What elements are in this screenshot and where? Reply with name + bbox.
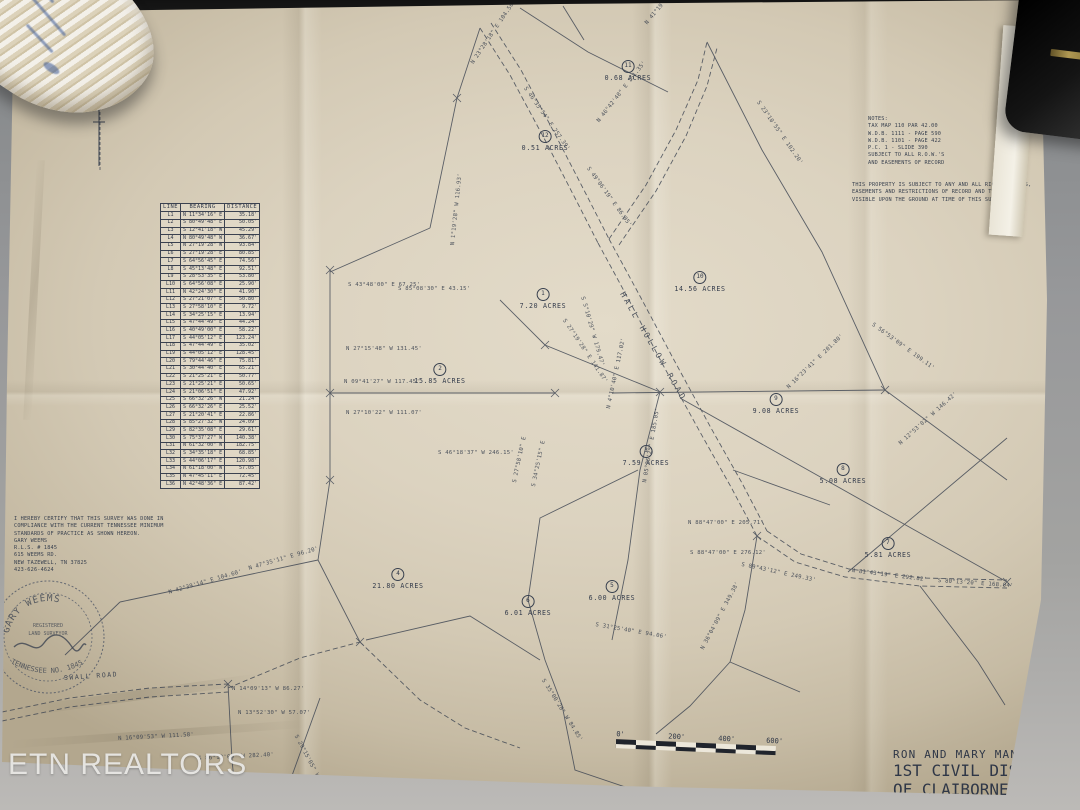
line-table-cell: N 27°19'28" W: [180, 242, 224, 250]
line-table-cell: 25.90': [225, 281, 260, 289]
line-table-row: L32S 34°35'18" E68.85': [161, 450, 260, 458]
bearing-label: N 27°15'48" W 131.45': [346, 346, 422, 352]
line-table-cell: S 12°41'18" W: [180, 227, 224, 235]
text-line: NEW TAZEWELL, TN 37825: [14, 560, 164, 567]
text-line: 1ST CIVIL DISTRICT OF CLAIBORNE COUNTY, …: [893, 761, 1078, 810]
line-table-cell: S 27°58'10" E: [180, 304, 224, 312]
text-line: I HEREBY CERTIFY THAT THIS SURVEY WAS DO…: [14, 516, 164, 523]
line-table-cell: S 47°44'49" E: [180, 342, 224, 350]
line-table-cell: 9.72': [225, 304, 260, 312]
svg-text:TENNESSEE NO. 1845: TENNESSEE NO. 1845: [10, 658, 84, 675]
line-table-cell: S 66°32'26" W: [180, 396, 224, 404]
line-table-cell: S 80°49'48" E: [180, 219, 224, 227]
line-table-row: L12S 27°21'07" E50.80': [161, 296, 260, 304]
line-table-cell: S 44°05'12" E: [180, 350, 224, 358]
lot-marker-4: 421.80 ACRES: [372, 560, 423, 590]
gold-label: [1050, 49, 1080, 62]
line-table-cell: N 42°24'30" E: [180, 289, 224, 297]
line-table-cell: L36: [161, 481, 181, 489]
line-table-cell: L22: [161, 373, 181, 381]
scale-label: 200': [668, 732, 685, 741]
lot-marker-10: 1014.56 ACRES: [674, 263, 725, 293]
line-table-cell: S 44°05'12" E: [180, 335, 224, 343]
lot-marker-9: 99.08 ACRES: [753, 385, 800, 415]
line-table-cell: 29.61': [225, 427, 260, 435]
line-table-cell: S 21°06'51" E: [180, 388, 224, 396]
line-table-row: L22S 21°25'21" E50.77': [161, 373, 260, 381]
lot-acreage: 15.85 ACRES: [414, 377, 465, 385]
line-table-row: L1N 11°34'16" E35.18': [161, 212, 260, 220]
line-table-cell: L12: [161, 296, 181, 304]
line-table-cell: L10: [161, 281, 181, 289]
line-table-cell: 21.24': [225, 396, 260, 404]
lot-marker-7: 75.81 ACRES: [865, 529, 912, 559]
line-table-row: L19S 44°05'12" E128.45': [161, 350, 260, 358]
line-table-cell: S 40°49'00" E: [180, 327, 224, 335]
line-table-cell: L21: [161, 365, 181, 373]
line-table: LINE BEARING DISTANCE L1N 11°34'16" E35.…: [160, 203, 260, 489]
bearing-label: N 36°09'00" W 165.85': [236, 778, 312, 788]
line-table-cell: N 61°18'00" W: [180, 465, 224, 473]
line-table-cell: N 47°45'11" E: [180, 473, 224, 481]
line-table-cell: N 42°48'36" E: [180, 481, 224, 489]
text-line: SUBJECT TO ALL R.O.W.'S: [868, 152, 944, 159]
line-table-cell: N 11°34'16" E: [180, 212, 224, 220]
text-line: NOTES:: [868, 116, 944, 123]
line-table-row: L25S 66°32'26" W21.24': [161, 396, 260, 404]
plat-title: RON AND MARY MANN PROPERTY: [893, 748, 1078, 761]
line-table-cell: L16: [161, 327, 181, 335]
line-table-cell: 65.21': [225, 365, 260, 373]
surveyor-seal: GARY WEEMS REGISTERED LAND SURVEYOR TENN…: [0, 575, 110, 699]
lot-number: 1: [536, 288, 549, 301]
line-table-row: L7S 64°56'45" E74.56': [161, 258, 260, 266]
line-table-cell: 50.77': [225, 373, 260, 381]
lot-number: 11: [621, 60, 634, 73]
line-table-cell: 57.05': [225, 465, 260, 473]
line-table-cell: L27: [161, 412, 181, 420]
line-table-cell: S 79°44'46" E: [180, 358, 224, 366]
scale-label: 400': [718, 735, 735, 744]
line-table-cell: L6: [161, 250, 181, 258]
line-table-cell: S 21°20'41" E: [180, 412, 224, 420]
notes-block: NOTES:TAX MAP 110 PAR 42.00W.D.B. 1111 -…: [868, 116, 944, 167]
line-table-cell: S 21°25'21" E: [180, 373, 224, 381]
line-table-cell: 87.42': [225, 481, 260, 489]
line-table-cell: 47.92': [225, 388, 260, 396]
line-table-row: L16S 40°49'00" E58.22': [161, 327, 260, 335]
line-table-cell: L30: [161, 435, 181, 443]
line-table-cell: 75.81': [225, 358, 260, 366]
line-table-cell: L31: [161, 442, 181, 450]
line-table-cell: 58.22': [225, 327, 260, 335]
line-table-row: L35N 47°45'11" E72.45': [161, 473, 260, 481]
title-block: RON AND MARY MANN PROPERTY 1ST CIVIL DIS…: [893, 748, 1078, 810]
lot-number: 8: [836, 463, 849, 476]
lot-acreage: 6.01 ACRES: [505, 609, 552, 617]
line-table-cell: 50.80': [225, 296, 260, 304]
text-line: TAX MAP 110 PAR 42.00: [868, 123, 944, 130]
lot-marker-1: 17.20 ACRES: [520, 280, 567, 310]
bearing-label: N 27°10'22" W 111.07': [346, 410, 422, 416]
line-table-cell: L5: [161, 242, 181, 250]
line-table-cell: L23: [161, 381, 181, 389]
line-table-cell: 123.24': [225, 335, 260, 343]
line-table-cell: L32: [161, 450, 181, 458]
line-table-cell: S 45°13'48" E: [180, 265, 224, 273]
line-table-cell: L1: [161, 212, 181, 220]
line-table-cell: L33: [161, 458, 181, 466]
line-table-cell: S 28°53'35" E: [180, 273, 224, 281]
line-table-cell: L28: [161, 419, 181, 427]
bearing-label: N 88°47'00" E 205.71': [688, 520, 764, 526]
line-table-cell: L17: [161, 335, 181, 343]
line-table-cell: 53.80': [225, 273, 260, 281]
text-line: GARY WEEMS: [14, 538, 164, 545]
certification-block: I HEREBY CERTIFY THAT THIS SURVEY WAS DO…: [14, 516, 164, 574]
line-table-row: L4N 80°49'48" W36.67': [161, 235, 260, 243]
line-table-row: L28S 85°27'32" W24.09': [161, 419, 260, 427]
seal-middle1: REGISTERED: [33, 623, 63, 629]
line-table-row: L24S 21°06'51" E47.92': [161, 388, 260, 396]
line-table-cell: L7: [161, 258, 181, 266]
line-table-cell: 35.18': [225, 212, 260, 220]
line-table-cell: L35: [161, 473, 181, 481]
line-table-row: L18S 47°44'49" E35.02': [161, 342, 260, 350]
line-table-cell: 41.90': [225, 289, 260, 297]
line-table-row: L9S 28°53'35" E53.80': [161, 273, 260, 281]
lot-number: 5: [605, 580, 618, 593]
line-table-cell: L29: [161, 427, 181, 435]
line-table-cell: L19: [161, 350, 181, 358]
line-table-row: L29S 82°35'08" E29.61': [161, 427, 260, 435]
line-table-header: LINE BEARING DISTANCE: [161, 204, 260, 212]
line-table-cell: L26: [161, 404, 181, 412]
line-table-cell: 140.38': [225, 435, 260, 443]
plat-paper: LINE BEARING DISTANCE L1N 11°34'16" E35.…: [0, 0, 1080, 810]
etn-realtors-watermark: ETN REALTORS: [8, 748, 247, 782]
line-table-cell: L34: [161, 465, 181, 473]
line-table-cell: 25.52': [225, 404, 260, 412]
col-line: LINE: [161, 204, 181, 212]
lot-acreage: 7.20 ACRES: [520, 302, 567, 310]
line-table-row: L30S 75°37'27" W140.38': [161, 435, 260, 443]
text-line: R.L.S. # 1845: [14, 545, 164, 552]
line-table-row: L17S 44°05'12" E123.24': [161, 335, 260, 343]
lot-marker-5: 56.00 ACRES: [589, 572, 636, 602]
line-table-cell: S 75°37'27" W: [180, 435, 224, 443]
lot-acreage: 5.08 ACRES: [820, 477, 867, 485]
line-table-cell: L18: [161, 342, 181, 350]
line-table-cell: 22.86': [225, 412, 260, 420]
line-table-cell: 93.84': [225, 242, 260, 250]
line-table-row: L33S 44°06'17" E120.98': [161, 458, 260, 466]
text-line: P.C. 1 - SLIDE 390: [868, 145, 944, 152]
line-table-row: L13S 27°58'10" E9.72': [161, 304, 260, 312]
line-table-row: L10S 64°56'08" E25.90': [161, 281, 260, 289]
line-table-cell: 72.45': [225, 473, 260, 481]
text-line: W.D.B. 1101 - PAGE 422: [868, 138, 944, 145]
lot-marker-6: 66.01 ACRES: [505, 587, 552, 617]
lot-marker-2: 215.85 ACRES: [414, 355, 465, 385]
line-table-cell: 50.65': [225, 381, 260, 389]
line-table-cell: S 64°56'45" E: [180, 258, 224, 266]
lot-number: 6: [521, 595, 534, 608]
bearing-label: N 14°09'13" W 86.27': [232, 686, 304, 692]
line-table-cell: S 66°32'26" E: [180, 404, 224, 412]
line-table-row: L14S 34°25'15" E13.94': [161, 312, 260, 320]
line-table-row: L21S 30°44'40" E65.21': [161, 365, 260, 373]
text-line: 423-626-4624: [14, 567, 164, 574]
line-table-row: L34N 61°18'00" W57.05': [161, 465, 260, 473]
line-table-row: L5N 27°19'28" W93.84': [161, 242, 260, 250]
title-block-lines: 1ST CIVIL DISTRICT OF CLAIBORNE COUNTY, …: [893, 761, 1078, 810]
line-table-cell: 24.09': [225, 419, 260, 427]
text-line: 615 WEEMS RD.: [14, 552, 164, 559]
line-table-cell: 128.45': [225, 350, 260, 358]
lot-number: 2: [434, 363, 447, 376]
line-table-row: L15S 47°44'49" E44.24': [161, 319, 260, 327]
text-line: AND EASEMENTS OF RECORD: [868, 160, 944, 167]
line-table-cell: L8: [161, 265, 181, 273]
line-table-cell: L13: [161, 304, 181, 312]
line-table-row: L2S 80°49'48" E50.05': [161, 219, 260, 227]
line-table-cell: L14: [161, 312, 181, 320]
col-bearing: BEARING: [180, 204, 224, 212]
line-table-cell: L2: [161, 219, 181, 227]
line-table-cell: L20: [161, 358, 181, 366]
line-table-cell: L25: [161, 396, 181, 404]
photo-of-survey-plat: LINE BEARING DISTANCE L1N 11°34'16" E35.…: [0, 0, 1080, 810]
lot-number: 10: [694, 271, 707, 284]
line-table-row: L8S 45°13'48" E92.51': [161, 265, 260, 273]
line-table-cell: L4: [161, 235, 181, 243]
line-table-cell: L15: [161, 319, 181, 327]
seal-bottom: TENNESSEE NO. 1845: [10, 658, 84, 675]
line-table-cell: S 82°35'08" E: [180, 427, 224, 435]
lot-acreage: 21.80 ACRES: [372, 582, 423, 590]
lot-number: 12: [538, 130, 551, 143]
line-table-cell: S 27°21'07" E: [180, 296, 224, 304]
seal-signature: [14, 635, 86, 651]
line-table-cell: N 80°49'48" W: [180, 235, 224, 243]
bearing-label: N 13°52'30" W 57.07': [238, 710, 310, 716]
col-distance: DISTANCE: [225, 204, 260, 212]
line-table-cell: N 61°32'00" W: [180, 442, 224, 450]
lot-acreage: 9.08 ACRES: [753, 407, 800, 415]
lot-acreage: 6.00 ACRES: [589, 594, 636, 602]
text-line: W.D.B. 1111 - PAGE 590: [868, 131, 944, 138]
lot-number: 7: [881, 537, 894, 550]
line-table-cell: S 85°27'32" W: [180, 419, 224, 427]
line-table-cell: 182.75': [225, 442, 260, 450]
bearing-label: N 09°41'27" W 117.45': [344, 379, 420, 385]
line-table-cell: S 44°06'17" E: [180, 458, 224, 466]
line-table-cell: L9: [161, 273, 181, 281]
line-table-row: L11N 42°24'30" E41.90': [161, 289, 260, 297]
line-table-cell: S 34°35'18" E: [180, 450, 224, 458]
line-table-cell: 13.94': [225, 312, 260, 320]
line-table-cell: 36.67': [225, 235, 260, 243]
line-table-cell: S 21°25'21" E: [180, 381, 224, 389]
scale-label: 0': [616, 730, 625, 738]
line-table-row: L36N 42°48'36" E87.42': [161, 481, 260, 489]
line-table-row: L23S 21°25'21" E50.65': [161, 381, 260, 389]
line-table-cell: 120.98': [225, 458, 260, 466]
line-table-cell: 45.29': [225, 227, 260, 235]
line-table-row: L20S 79°44'46" E75.81': [161, 358, 260, 366]
line-table-cell: 68.85': [225, 450, 260, 458]
seal-middle2: LAND SURVEYOR: [28, 631, 68, 637]
lot-acreage: 14.56 ACRES: [674, 285, 725, 293]
line-table-cell: S 34°25'15" E: [180, 312, 224, 320]
line-table-cell: S 27°19'28" E: [180, 250, 224, 258]
line-table-cell: 92.51': [225, 265, 260, 273]
line-table-cell: L11: [161, 289, 181, 297]
bearing-label: S 88°47'00" E 276.12': [690, 550, 766, 556]
line-table-row: L3S 12°41'18" W45.29': [161, 227, 260, 235]
lot-number: 4: [392, 568, 405, 581]
line-table-cell: 74.56': [225, 258, 260, 266]
line-table-cell: S 30°44'40" E: [180, 365, 224, 373]
line-table-cell: 80.85': [225, 250, 260, 258]
line-table-row: L31N 61°32'00" W182.75': [161, 442, 260, 450]
lot-marker-8: 85.08 ACRES: [820, 455, 867, 485]
text-line: STANDARDS OF PRACTICE AS SHOWN HEREON.: [14, 531, 164, 538]
line-table-cell: S 64°56'08" E: [180, 281, 224, 289]
line-table-cell: 44.24': [225, 319, 260, 327]
line-table-body: L1N 11°34'16" E35.18'L2S 80°49'48" E50.0…: [161, 212, 260, 489]
line-table-cell: L3: [161, 227, 181, 235]
lot-number: 9: [769, 393, 782, 406]
lot-acreage: 5.81 ACRES: [865, 551, 912, 559]
line-table-row: L6S 27°19'28" E80.85': [161, 250, 260, 258]
line-table-row: L27S 21°20'41" E22.86': [161, 412, 260, 420]
text-line: COMPLIANCE WITH THE CURRENT TENNESSEE MI…: [14, 523, 164, 530]
line-table-cell: 35.02': [225, 342, 260, 350]
bearing-label: S 85°08'30" E 43.15': [398, 286, 470, 292]
line-table-cell: L24: [161, 388, 181, 396]
line-table-row: L26S 66°32'26" E25.52': [161, 404, 260, 412]
line-table-cell: 50.05': [225, 219, 260, 227]
bearing-label: S 46°18'37" W 246.15': [438, 450, 514, 456]
line-table-cell: S 47°44'49" E: [180, 319, 224, 327]
scale-label: 600': [766, 737, 783, 746]
